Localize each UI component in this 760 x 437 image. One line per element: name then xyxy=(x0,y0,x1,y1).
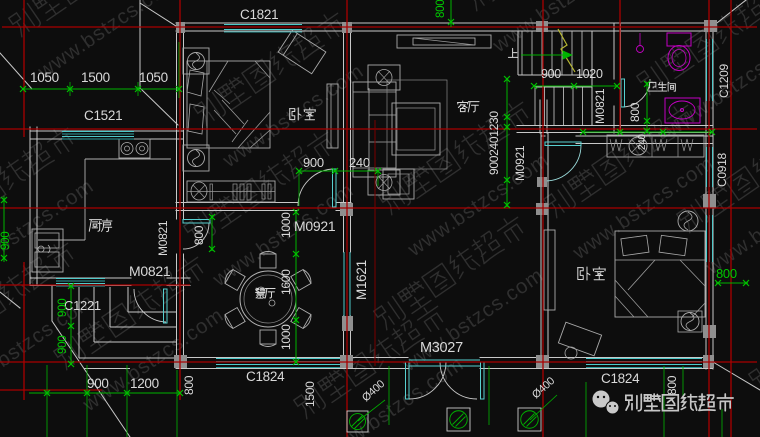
svg-text:M0821: M0821 xyxy=(156,220,170,256)
svg-text:900: 900 xyxy=(87,376,109,391)
svg-text:M0921: M0921 xyxy=(294,218,336,234)
svg-text:1200: 1200 xyxy=(130,376,159,391)
svg-text:800: 800 xyxy=(665,375,679,395)
svg-text:M1621: M1621 xyxy=(354,260,369,300)
svg-text:1050: 1050 xyxy=(139,70,168,85)
svg-text:1600: 1600 xyxy=(279,269,293,295)
svg-text:1000: 1000 xyxy=(279,324,293,350)
svg-text:900: 900 xyxy=(0,232,12,250)
svg-text:C1821: C1821 xyxy=(240,7,278,22)
svg-text:1020: 1020 xyxy=(576,67,603,81)
svg-text:M0921: M0921 xyxy=(513,145,527,181)
svg-text:240: 240 xyxy=(349,155,370,170)
svg-text:1000: 1000 xyxy=(279,212,293,238)
svg-text:M3027: M3027 xyxy=(420,340,463,356)
svg-text:900: 900 xyxy=(303,155,324,170)
svg-text:C1221: C1221 xyxy=(64,298,101,313)
svg-text:C1521: C1521 xyxy=(84,108,122,123)
svg-text:800: 800 xyxy=(435,0,447,18)
svg-text:900: 900 xyxy=(57,299,69,317)
svg-text:900: 900 xyxy=(541,67,561,81)
svg-text:M0821: M0821 xyxy=(129,263,171,279)
svg-text:240: 240 xyxy=(637,133,648,150)
svg-text:C1824: C1824 xyxy=(246,369,285,384)
svg-text:9002401230: 9002401230 xyxy=(487,111,501,175)
svg-text:C1209: C1209 xyxy=(717,64,731,98)
svg-text:800: 800 xyxy=(716,266,737,281)
svg-text:900: 900 xyxy=(57,336,69,354)
svg-text:C1824: C1824 xyxy=(601,371,640,386)
svg-text:M0821: M0821 xyxy=(593,88,607,124)
svg-text:800: 800 xyxy=(182,375,196,395)
svg-text:800: 800 xyxy=(192,225,206,245)
svg-text:1500: 1500 xyxy=(81,70,110,85)
svg-text:C0918: C0918 xyxy=(715,153,729,187)
svg-text:1050: 1050 xyxy=(30,70,59,85)
svg-text:800: 800 xyxy=(628,102,642,122)
svg-text:1500: 1500 xyxy=(303,381,317,407)
